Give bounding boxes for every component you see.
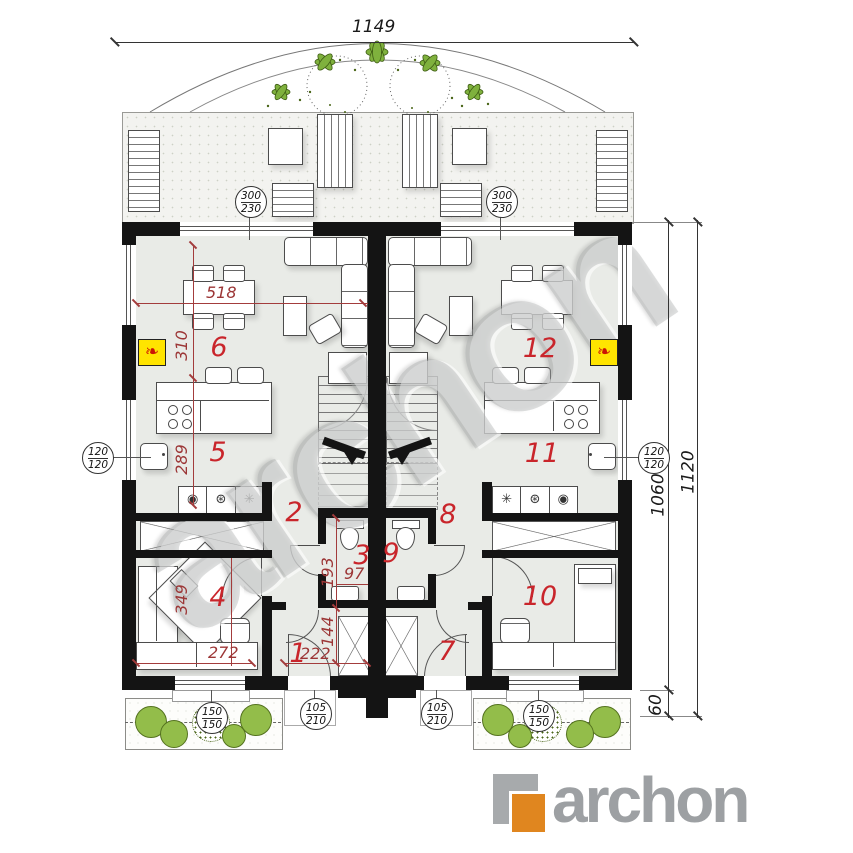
stamp-value: 150 [529, 704, 549, 716]
room-label-8: 8 [430, 501, 466, 529]
stamp-leader [604, 457, 639, 458]
stamp-value: 150 [202, 706, 222, 718]
bar-stool [237, 367, 264, 384]
room-label-12: 12 [522, 335, 558, 363]
kitchen-counter-right-line [485, 400, 597, 401]
dim-349: 349 [172, 584, 191, 615]
room-label-4: 4 [200, 584, 236, 612]
hall2-wall [136, 513, 272, 521]
dining-chair [223, 313, 245, 330]
burner [564, 405, 574, 415]
dim-310: 310 [172, 330, 191, 361]
right-wall-b [618, 325, 632, 400]
sofa-right-side [388, 264, 415, 348]
appliance-glyph: ✳ [236, 487, 263, 515]
entry-opening-left [288, 676, 330, 690]
terrace-chair-right [440, 183, 482, 217]
left-wall-b [122, 325, 136, 400]
wardrobe-hall1 [338, 616, 372, 676]
burner [168, 405, 178, 415]
kitchen-counter-left-div [200, 401, 201, 431]
floor-plan-canvas: 1149 [0, 0, 853, 853]
stamp-value: 150 [202, 719, 222, 731]
dining-chair [542, 265, 564, 282]
room-label-2: 2 [276, 499, 312, 527]
stamp-front-window-right: 150150 [523, 700, 555, 732]
dim-97: 97 [344, 564, 364, 583]
dining-chair [223, 265, 245, 282]
room10-left-wall [482, 596, 492, 676]
appliance-glyph: ⊛ [521, 487, 549, 515]
terrace-chair-left [272, 183, 314, 217]
dim-1060: 1060 [649, 473, 669, 516]
bed-room10-pillow [578, 568, 612, 584]
kitchen-counter-left-line [157, 400, 269, 401]
kitchen11-corner-wall [482, 482, 492, 513]
dining-chair [511, 265, 533, 282]
sun-lounger-left-wall [128, 130, 160, 212]
bar-stool [492, 367, 519, 384]
flame-icon: ❧ [145, 342, 159, 362]
sofa-right-back [388, 237, 472, 266]
bottom-wall-3 [330, 676, 424, 690]
left-wall-a [122, 236, 136, 245]
flame-icon: ❧ [597, 342, 611, 362]
stamp-value: 210 [306, 715, 326, 727]
logo-wordmark: archon [552, 766, 832, 836]
dim-518: 518 [206, 283, 237, 302]
entry-pier [338, 690, 416, 698]
stamp-value: 300 [492, 190, 512, 202]
dining-table-right [501, 280, 573, 315]
logo-orange-square [509, 791, 548, 835]
wardrobe-hall8 [492, 521, 616, 552]
desk-room4 [136, 642, 258, 670]
bedroom-window-left [175, 676, 245, 690]
fireplace-right-icon: ❧ [590, 339, 618, 366]
stamp-value: 120 [644, 446, 664, 458]
terrace-table-left [268, 128, 303, 165]
terrace-lounger-right [402, 114, 438, 188]
kitchen-counter-right-div [553, 401, 554, 431]
party-wall [368, 222, 386, 690]
terrace-door-window-right [441, 222, 574, 236]
room4-right-wall [262, 596, 272, 676]
top-dimension-line [115, 42, 634, 43]
stamp-value: 120 [644, 459, 664, 471]
stair-arrow-left [344, 452, 360, 465]
dim-193: 193 [318, 557, 337, 588]
bottom-wall-5 [579, 676, 632, 690]
stamp-value: 105 [306, 702, 326, 714]
sink-bath9 [397, 586, 425, 601]
appliance-glyph: ✳ [493, 487, 521, 515]
wardrobe-hall7 [384, 616, 418, 676]
wardrobe-room4-line [156, 567, 157, 641]
dim-272-line [136, 663, 253, 664]
room-label-11: 11 [524, 440, 560, 468]
fireplace-left-icon: ❧ [138, 339, 166, 366]
burner [182, 419, 192, 429]
stamp-value: 120 [88, 459, 108, 471]
room-label-10: 10 [522, 583, 558, 611]
desk-room10-line [553, 643, 554, 667]
dim-272: 272 [208, 643, 239, 662]
stamp-value: 120 [88, 446, 108, 458]
desk-room10 [492, 642, 616, 670]
dim-chain-vert [193, 245, 194, 505]
room-label-7: 7 [429, 638, 465, 666]
kitchen-window-right [618, 400, 632, 480]
top-wall-left [122, 222, 180, 236]
terrace-lounger-left [317, 114, 353, 188]
room-label-9: 9 [373, 540, 409, 568]
bottom-wall-4 [466, 676, 509, 690]
burner [168, 419, 178, 429]
room10-top-wall [482, 550, 618, 558]
right-wall-c [618, 480, 632, 690]
stamp-front-window-left: 150150 [196, 702, 228, 734]
bush [160, 720, 188, 748]
dim-222: 222 [300, 644, 331, 663]
dining-window-right [618, 245, 632, 325]
sun-lounger-right-wall [596, 130, 628, 212]
dim-144: 144 [318, 616, 337, 647]
dim-60: 60 [646, 694, 666, 716]
bedroom-window-right [509, 676, 579, 690]
stamp-entry-door-left: 105210 [300, 698, 332, 730]
terrace-table-right [452, 128, 487, 165]
top-wall-right [574, 222, 632, 236]
faucet-dot [589, 453, 592, 456]
bar-stool [524, 367, 551, 384]
sofa-left-back [284, 237, 368, 266]
stamp-terrace-door-right: 300230 [486, 186, 518, 218]
stamp-value: 210 [427, 715, 447, 727]
desk-chair-room10 [500, 618, 530, 644]
hall8-wall [482, 513, 618, 521]
dim-289: 289 [172, 444, 191, 475]
stamp-side-window-left: 120120 [82, 442, 114, 474]
desk-chair-room4 [220, 618, 250, 644]
bath9-top-wall [386, 508, 436, 518]
overall-width-dim: 1149 [352, 17, 395, 37]
burner [182, 405, 192, 415]
stamp-entry-door-right: 105210 [421, 698, 453, 730]
entry-opening-right [424, 676, 466, 690]
appliance-glyph: ◉ [550, 487, 577, 515]
side-table-left [283, 296, 307, 336]
kitchen-window-left [122, 400, 136, 480]
stamp-value: 230 [241, 203, 261, 215]
stamp-side-window-right: 120120 [638, 442, 670, 474]
hall7-top-wall [468, 602, 482, 610]
bath3-bottom-wall [318, 600, 368, 608]
appliance-row-right: ✳ ⊛ ◉ [492, 486, 578, 516]
bush [566, 720, 594, 748]
dining-window-left [122, 245, 136, 325]
bath3-left-wall-a [318, 518, 326, 544]
terrace-door-window-left [180, 222, 313, 236]
burner [564, 419, 574, 429]
stair-arrow-right [394, 452, 410, 465]
garden-arch-decoration [0, 0, 853, 130]
side-table-right [449, 296, 473, 336]
dining-chair [511, 313, 533, 330]
entry-pier-stub [366, 698, 388, 718]
room-label-5: 5 [200, 439, 236, 467]
dining-chair [192, 313, 214, 330]
bath9-bottom-wall [386, 600, 436, 608]
room-label-6: 6 [201, 334, 237, 362]
bush [222, 724, 246, 748]
dim-1120: 1120 [679, 450, 699, 493]
dim-97-line [336, 584, 368, 585]
burner [578, 419, 588, 429]
kitchen5-corner-wall [262, 482, 272, 513]
dining-chair [192, 265, 214, 282]
stamp-terrace-door-left: 300230 [235, 186, 267, 218]
stamp-value: 300 [241, 190, 261, 202]
staircase-left-dashed [318, 462, 370, 510]
hall1-top-wall [272, 602, 286, 610]
stamp-value: 105 [427, 702, 447, 714]
stamp-value: 150 [529, 717, 549, 729]
dim-1060-line [668, 220, 669, 718]
bottom-wall-2 [245, 676, 288, 690]
room4-top-wall [136, 550, 272, 558]
bath3-top-wall [318, 508, 368, 518]
burner [578, 405, 588, 415]
appliance-glyph: ⊛ [207, 487, 235, 515]
right-wall-a [618, 236, 632, 245]
faucet-dot [162, 453, 165, 456]
bottom-wall-1 [122, 676, 175, 690]
bar-stool [205, 367, 232, 384]
dim-518-line [136, 303, 368, 304]
stamp-value: 230 [492, 203, 512, 215]
dining-chair [542, 313, 564, 330]
right-dim-connector-top [632, 222, 702, 223]
stamp-leader [111, 457, 151, 458]
